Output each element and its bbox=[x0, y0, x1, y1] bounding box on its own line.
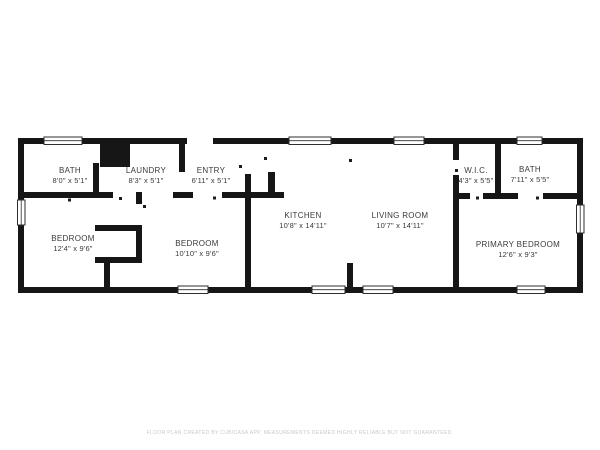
room-label-entry: ENTRY 6'11" x 5'1" bbox=[192, 166, 231, 186]
room-label-wic: W.I.C. 4'3" x 5'5" bbox=[459, 166, 494, 186]
room-name: ENTRY bbox=[192, 166, 231, 176]
room-name: BEDROOM bbox=[175, 239, 219, 249]
room-label-bath: BATH 8'0" x 5'1" bbox=[53, 166, 88, 186]
room-dims: 10'8" x 14'11" bbox=[279, 221, 327, 231]
room-dims: 12'6" x 9'3" bbox=[476, 250, 560, 260]
room-label-primary-bedroom: PRIMARY BEDROOM 12'6" x 9'3" bbox=[476, 240, 560, 260]
room-label-laundry: LAUNDRY 8'3" x 5'1" bbox=[126, 166, 166, 186]
room-dims: 8'0" x 5'1" bbox=[53, 176, 88, 186]
room-dims: 8'3" x 5'1" bbox=[126, 176, 166, 186]
room-label-bath-2: BATH 7'11" x 5'5" bbox=[511, 165, 550, 185]
room-dims: 10'10" x 9'6" bbox=[175, 249, 219, 259]
room-dims: 12'4" x 9'6" bbox=[51, 244, 94, 254]
room-label-bedroom-2: BEDROOM 10'10" x 9'6" bbox=[175, 239, 219, 259]
room-dims: 7'11" x 5'5" bbox=[511, 175, 550, 185]
room-name: LIVING ROOM bbox=[372, 211, 429, 221]
room-label-living-room: LIVING ROOM 10'7" x 14'11" bbox=[372, 211, 429, 231]
room-dims: 4'3" x 5'5" bbox=[459, 176, 494, 186]
room-dims: 10'7" x 14'11" bbox=[372, 221, 429, 231]
room-label-bedroom-1: BEDROOM 12'4" x 9'6" bbox=[51, 234, 94, 254]
room-name: KITCHEN bbox=[279, 211, 327, 221]
footer-disclaimer: FLOOR PLAN CREATED BY CUBICASA APP. MEAS… bbox=[147, 430, 454, 436]
room-name: BATH bbox=[53, 166, 88, 176]
room-label-kitchen: KITCHEN 10'8" x 14'11" bbox=[279, 211, 327, 231]
room-name: W.I.C. bbox=[459, 166, 494, 176]
room-name: BEDROOM bbox=[51, 234, 94, 244]
room-name: BATH bbox=[511, 165, 550, 175]
utility-closet bbox=[100, 144, 130, 167]
room-dims: 6'11" x 5'1" bbox=[192, 176, 231, 186]
room-name: LAUNDRY bbox=[126, 166, 166, 176]
room-name: PRIMARY BEDROOM bbox=[476, 240, 560, 250]
floor-plan-image: BATH 8'0" x 5'1" LAUNDRY 8'3" x 5'1" ENT… bbox=[0, 0, 600, 450]
